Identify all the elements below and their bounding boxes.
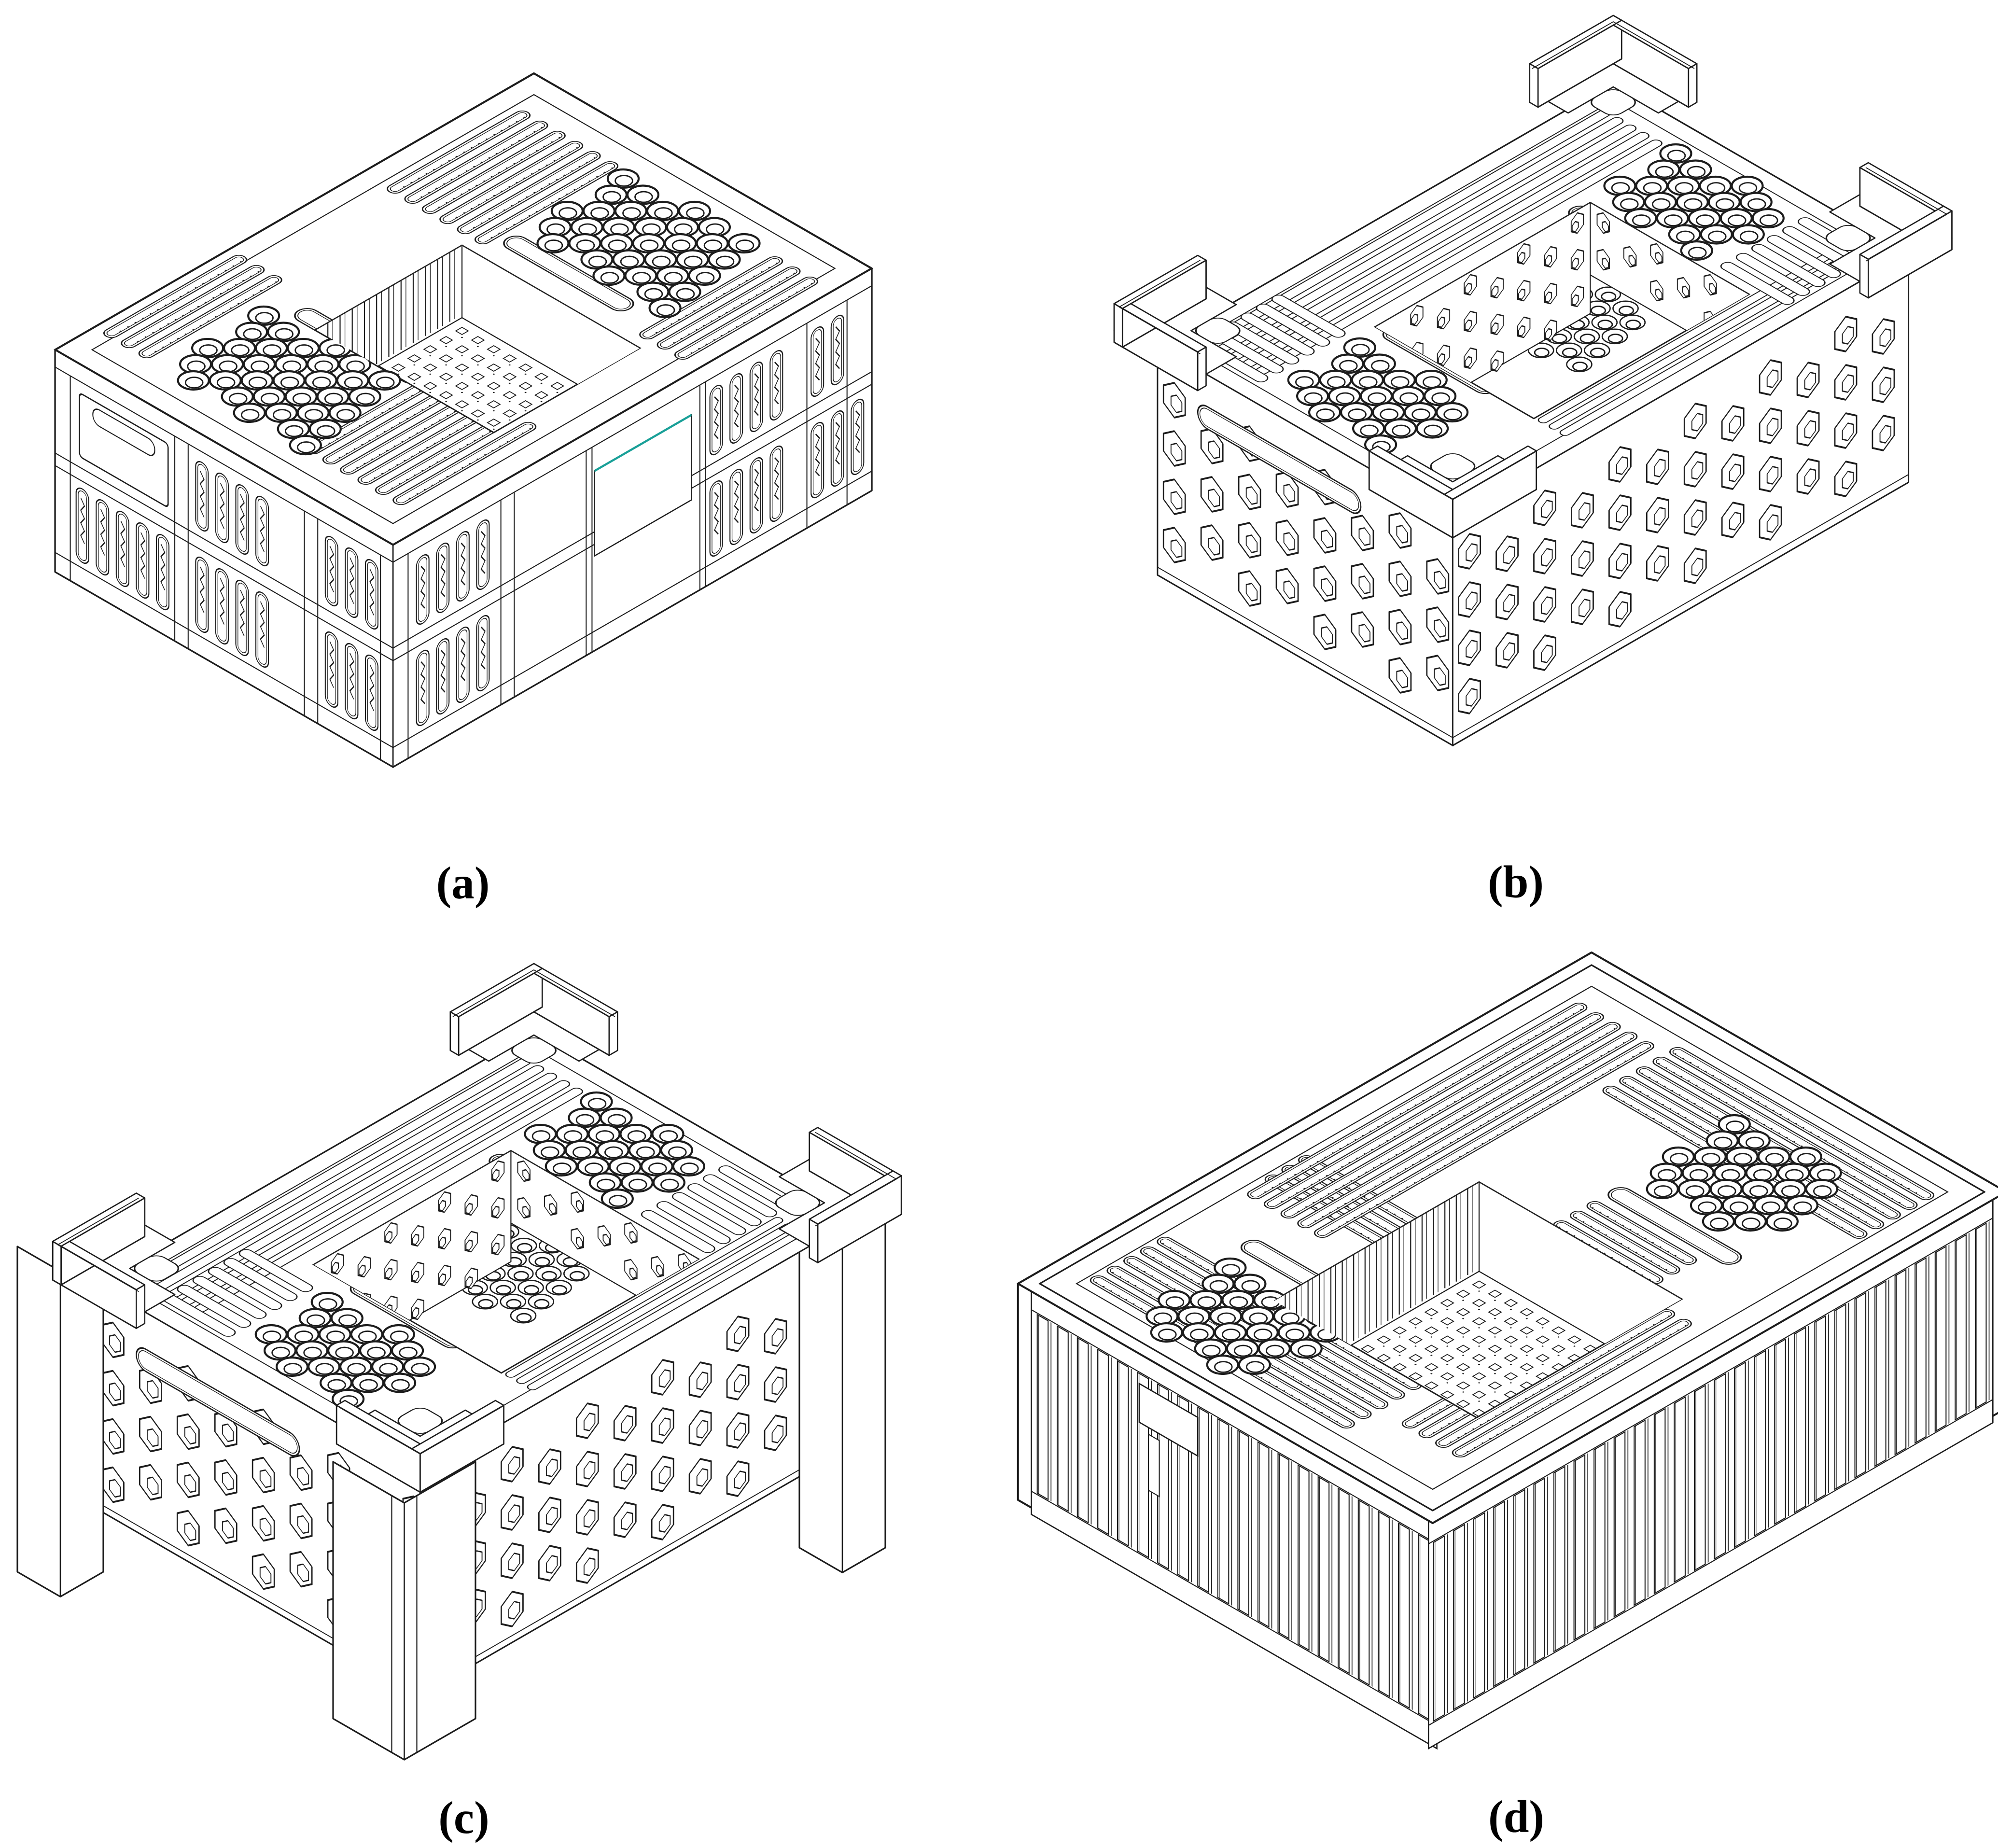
svg-text:(b): (b) xyxy=(1488,856,1544,908)
svg-text:(d): (d) xyxy=(1488,1791,1544,1842)
svg-text:(a): (a) xyxy=(436,857,490,909)
svg-text:(c): (c) xyxy=(438,1792,489,1843)
